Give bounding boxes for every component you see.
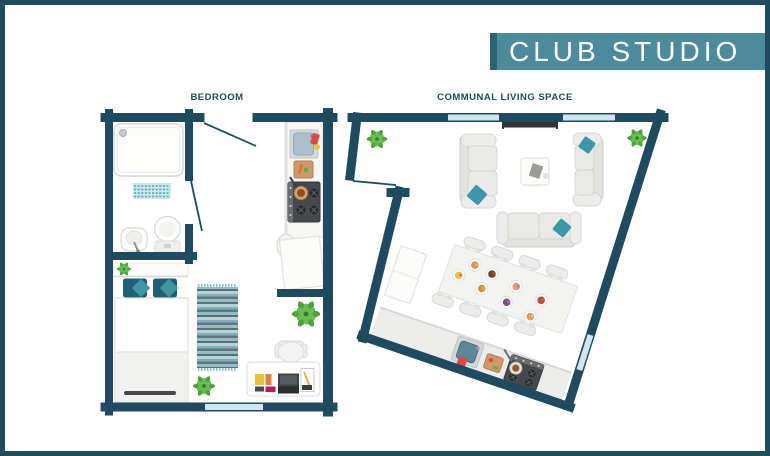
- counter-table-icon: [279, 236, 324, 290]
- cabinet-icon: [384, 246, 426, 304]
- kitchenette-sink-icon: [290, 130, 320, 158]
- club-studio-floorplan: BEDROOM COMMUNAL LIVING SPACE CLUB STUDI…: [0, 0, 770, 456]
- plant-floor-icon: [193, 375, 215, 398]
- dining-set: [431, 232, 582, 345]
- notepad-icon: [301, 369, 314, 392]
- sofa-front-icon: [497, 212, 581, 247]
- bedroom-label: BEDROOM: [190, 92, 243, 103]
- rug-icon: [197, 286, 238, 370]
- plant-top-left-icon: [367, 128, 388, 149]
- bathroom-door-icon: [191, 181, 202, 231]
- bedroom-entry-door-icon: [204, 123, 256, 146]
- desk-chair-icon: [275, 341, 307, 362]
- banner-title: CLUB STUDIO: [497, 36, 741, 68]
- desk-icon: [247, 362, 320, 396]
- plant-large-icon: [292, 299, 321, 328]
- bed-icon: [115, 298, 188, 402]
- cutting-board-icon: [294, 161, 313, 178]
- sofa-left-icon: [460, 134, 497, 208]
- laptop-icon: [278, 374, 299, 394]
- tv-icon: [502, 121, 558, 129]
- stove-icon: [288, 177, 320, 222]
- plant-top-right-icon: [627, 128, 647, 148]
- toilet-icon: [155, 217, 181, 253]
- communal-entry-door-icon: [353, 181, 396, 185]
- sofa-right-icon: [573, 133, 603, 206]
- bath-mat-icon: [133, 183, 171, 199]
- coffee-table-icon: [521, 158, 549, 187]
- club-studio-banner: CLUB STUDIO: [490, 33, 765, 70]
- pillows-icon: [123, 279, 178, 298]
- communal-label: COMMUNAL LIVING SPACE: [437, 92, 573, 103]
- hand-basin-icon: [121, 228, 147, 253]
- shower-icon: [114, 124, 183, 176]
